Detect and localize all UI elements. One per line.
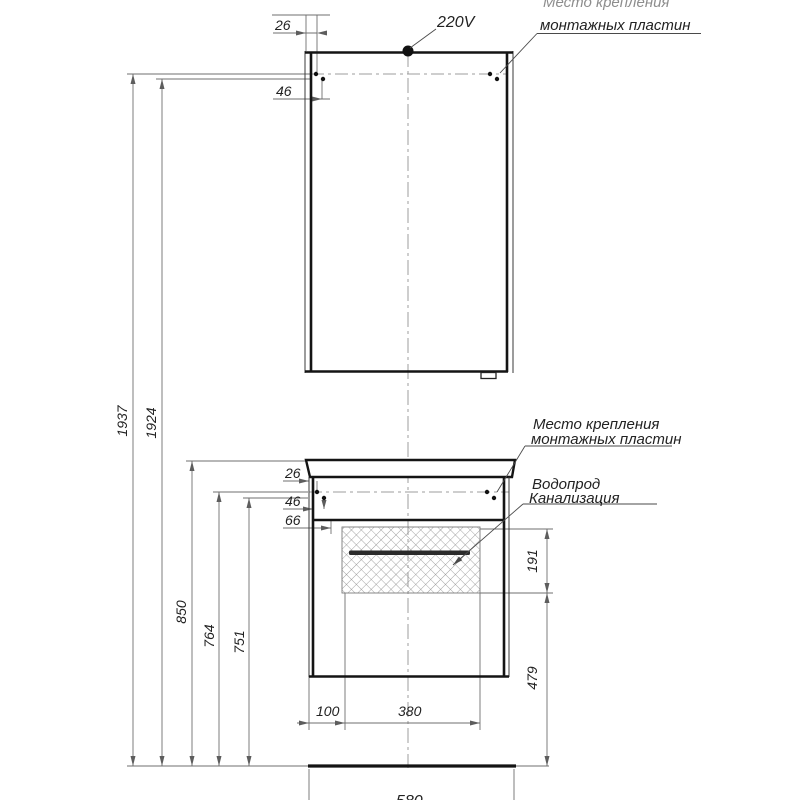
dim-opening-floor-height: 479 [524, 666, 540, 690]
dim-arrows [131, 31, 550, 767]
dim-mirror-offset1: 26 [274, 17, 291, 33]
mounting-dot [488, 72, 492, 76]
power-label: 220V [436, 14, 476, 31]
drawer-handle [349, 551, 470, 556]
dimension-lines [133, 33, 547, 766]
mount-mid-label-line2: монтажных пластин [531, 431, 681, 448]
dim-vanity-offset2: 46 [285, 493, 301, 509]
mirror-cabinet-side-edges [305, 51, 513, 373]
dim-opening-height: 191 [524, 549, 540, 572]
mirror-door-handle [481, 373, 496, 379]
mirror-cabinet-outline [305, 52, 513, 372]
mount-top-label-line2: монтажных пластин [540, 17, 690, 34]
mounting-dot [315, 490, 319, 494]
extension-lines [127, 15, 553, 800]
mounting-dot [321, 77, 325, 81]
furniture-installation-drawing: 220V Место крепления монтажных пластин 2… [0, 0, 800, 800]
mounting-dot [495, 77, 499, 81]
mount-top-label-line1: Место крепления [543, 0, 669, 11]
vanity-countertop [306, 460, 515, 477]
dim-mirror-mount-height: 1924 [143, 407, 159, 438]
dim-total-height: 1937 [114, 404, 130, 436]
dim-vanity-width: 580 [396, 793, 423, 800]
technical-drawing-page: 220V Место крепления монтажных пластин 2… [0, 0, 800, 800]
dim-mirror-offset2: 46 [276, 83, 292, 99]
mounting-dot [322, 496, 326, 500]
mounting-dot [492, 496, 496, 500]
dim-opening-left-offset: 100 [316, 703, 340, 719]
mounting-dot [485, 490, 489, 494]
sewerage-label: Канализация [529, 490, 620, 507]
dim-vanity-offset1: 26 [284, 465, 301, 481]
dim-vanity-mount-height1: 764 [201, 624, 217, 648]
dim-vanity-mount-height2: 751 [231, 630, 247, 653]
dim-vanity-top-height: 850 [173, 600, 189, 624]
dim-vanity-offset3: 66 [285, 512, 301, 528]
mounting-dot [314, 72, 318, 76]
dim-opening-width: 380 [398, 703, 422, 719]
power-leader-line [410, 29, 436, 48]
